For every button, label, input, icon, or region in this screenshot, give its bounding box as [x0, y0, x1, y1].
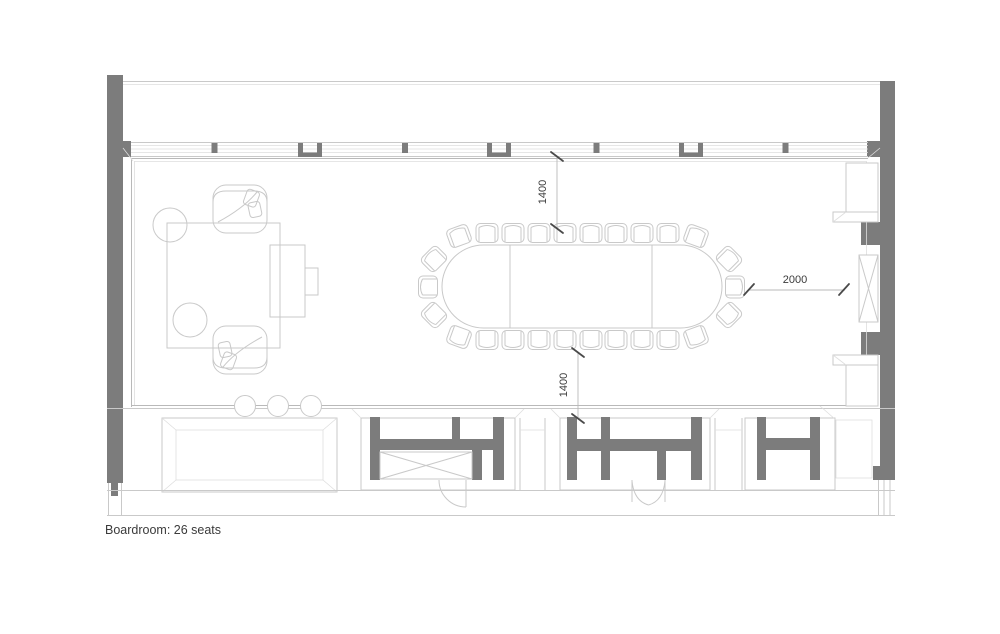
- chair: [420, 301, 449, 330]
- chair: [476, 224, 498, 243]
- east-wall: [880, 81, 895, 480]
- core-block-a: [370, 417, 504, 507]
- core-block-c: [757, 417, 820, 480]
- plant: [153, 208, 187, 242]
- chairs: [419, 223, 745, 349]
- chair: [605, 224, 627, 243]
- stool: [268, 396, 289, 417]
- chair: [726, 276, 745, 298]
- chair: [445, 324, 472, 349]
- chair: [502, 331, 524, 350]
- chair: [580, 331, 602, 350]
- chair: [657, 224, 679, 243]
- core-block-b: [567, 417, 702, 505]
- plant: [173, 303, 207, 337]
- table-top: [442, 245, 722, 328]
- chair: [682, 223, 709, 248]
- stool: [301, 396, 322, 417]
- chair: [631, 224, 653, 243]
- chair: [554, 331, 576, 350]
- armchair: [213, 185, 267, 233]
- chair: [476, 331, 498, 350]
- dimension-label: 1400: [558, 373, 570, 397]
- dimension-table-to-core-wall: 1400: [558, 348, 584, 423]
- stool: [235, 396, 256, 417]
- west-wall: [107, 75, 123, 483]
- chair: [419, 276, 438, 298]
- dimensions: 1400 1400 2000: [537, 152, 849, 423]
- armchair: [213, 326, 267, 374]
- conference-table: [442, 245, 722, 328]
- door-swing: [439, 480, 466, 507]
- east-wall-shaft: [833, 163, 878, 406]
- floor-plan-drawing: 1400 1400 2000 Boardroom: 26 seats: [0, 0, 1000, 634]
- chair: [605, 331, 627, 350]
- plan-caption: Boardroom: 26 seats: [105, 523, 221, 537]
- chair: [715, 301, 744, 330]
- dimension-table-to-east-wall: 2000: [744, 274, 849, 295]
- chair: [420, 245, 449, 274]
- chair: [528, 224, 550, 243]
- chair: [631, 331, 653, 350]
- side-table: [305, 268, 318, 295]
- floor-plan-page: 1400 1400 2000 Boardroom: 26 seats: [0, 0, 1000, 634]
- room-walls: [107, 148, 895, 409]
- double-door-swing: [632, 480, 665, 505]
- chair: [657, 331, 679, 350]
- south-core: [107, 406, 895, 516]
- chair: [445, 223, 472, 248]
- dimension-label: 1400: [537, 180, 549, 204]
- dimension-window-to-table: 1400: [537, 152, 563, 233]
- chair: [682, 324, 709, 349]
- dimension-label: 2000: [783, 274, 807, 286]
- console-desk: [270, 245, 305, 317]
- chair: [580, 224, 602, 243]
- lounge-area: [153, 185, 322, 417]
- window-band: [131, 143, 868, 158]
- chair: [528, 331, 550, 350]
- chair: [502, 224, 524, 243]
